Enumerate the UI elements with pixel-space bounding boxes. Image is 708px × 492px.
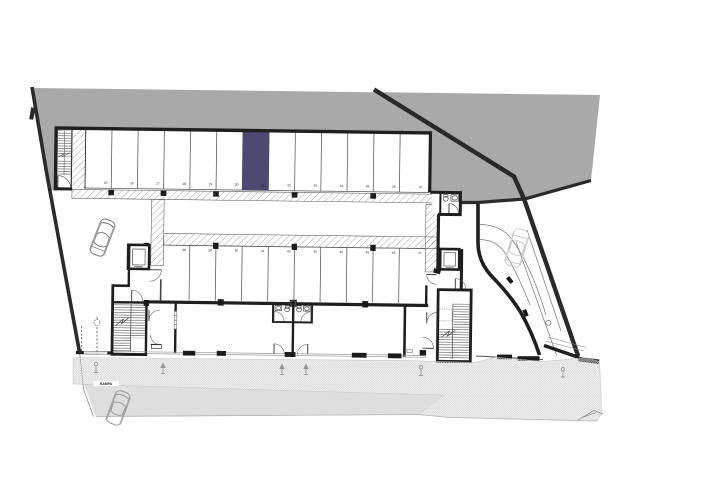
svg-text:38: 38 (182, 248, 186, 252)
svg-text:45: 45 (366, 250, 370, 254)
svg-text:44: 44 (339, 250, 343, 254)
svg-text:33: 33 (313, 184, 317, 188)
svg-text:RAMPA: RAMPA (100, 382, 113, 386)
svg-text:47: 47 (418, 251, 422, 255)
svg-text:32: 32 (287, 183, 291, 187)
svg-text:36: 36 (392, 185, 396, 189)
svg-text:42: 42 (287, 249, 291, 253)
svg-text:30: 30 (235, 183, 239, 187)
svg-text:26: 26 (130, 181, 134, 185)
svg-text:37: 37 (419, 185, 423, 189)
svg-text:35: 35 (366, 184, 370, 188)
svg-text:41: 41 (261, 249, 265, 253)
svg-text:34: 34 (340, 184, 344, 188)
svg-text:27: 27 (156, 182, 160, 186)
svg-text:46: 46 (392, 251, 396, 255)
svg-text:40: 40 (235, 249, 239, 253)
svg-text:29: 29 (209, 182, 213, 186)
svg-text:31: 31 (261, 184, 265, 188)
svg-text:43: 43 (313, 250, 317, 254)
svg-text:25: 25 (104, 181, 108, 185)
svg-text:28: 28 (182, 182, 186, 186)
svg-text:39: 39 (208, 248, 212, 252)
